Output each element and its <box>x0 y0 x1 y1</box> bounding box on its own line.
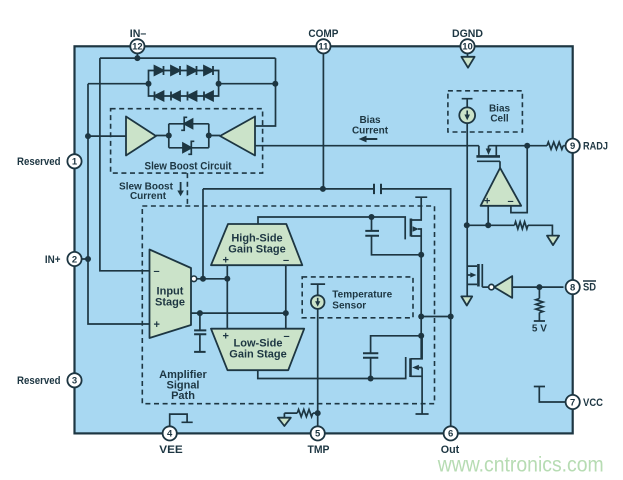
svg-text:9: 9 <box>570 141 575 152</box>
svg-text:–: – <box>508 196 514 208</box>
svg-text:Current: Current <box>352 126 389 137</box>
svg-text:+: + <box>223 255 229 267</box>
svg-text:–: – <box>284 331 290 343</box>
svg-text:IN–: IN– <box>130 28 147 40</box>
svg-text:Current: Current <box>130 191 167 202</box>
svg-text:7: 7 <box>570 397 575 408</box>
svg-text:Gain Stage: Gain Stage <box>229 349 286 361</box>
svg-text:VCC: VCC <box>583 397 603 409</box>
svg-text:4: 4 <box>167 429 173 440</box>
svg-text:5 V: 5 V <box>532 324 547 335</box>
svg-text:Stage: Stage <box>155 297 185 309</box>
svg-text:www.cntronics.com: www.cntronics.com <box>437 454 604 477</box>
svg-text:2: 2 <box>72 254 77 265</box>
svg-text:Gain Stage: Gain Stage <box>228 244 285 256</box>
svg-text:1: 1 <box>72 157 78 168</box>
svg-text:SD: SD <box>583 282 596 294</box>
svg-text:Bias: Bias <box>359 115 381 126</box>
svg-text:3: 3 <box>72 376 77 387</box>
svg-text:10: 10 <box>462 42 473 53</box>
svg-text:+: + <box>223 331 229 343</box>
svg-text:–: – <box>283 255 289 267</box>
svg-text:RADJ: RADJ <box>583 141 608 153</box>
svg-text:Temperature: Temperature <box>332 290 392 301</box>
svg-text:11: 11 <box>318 42 329 53</box>
svg-text:8: 8 <box>570 282 575 293</box>
svg-text:Slew Boost Circuit: Slew Boost Circuit <box>145 160 232 172</box>
svg-text:TMP: TMP <box>308 444 330 456</box>
svg-text:6: 6 <box>448 429 453 440</box>
svg-text:12: 12 <box>132 42 143 53</box>
svg-text:COMP: COMP <box>308 28 338 40</box>
svg-text:IN+: IN+ <box>45 254 61 266</box>
svg-text:–: – <box>154 266 160 278</box>
svg-text:Reserved: Reserved <box>17 156 61 168</box>
svg-text:5: 5 <box>315 429 321 440</box>
svg-text:+: + <box>484 196 490 208</box>
svg-text:Path: Path <box>171 390 195 402</box>
svg-text:Cell: Cell <box>490 114 509 125</box>
svg-text:Sensor: Sensor <box>332 301 366 312</box>
svg-text:+: + <box>154 319 160 331</box>
svg-text:VEE: VEE <box>159 444 183 456</box>
svg-text:Reserved: Reserved <box>17 375 61 387</box>
svg-text:DGND: DGND <box>452 28 483 40</box>
